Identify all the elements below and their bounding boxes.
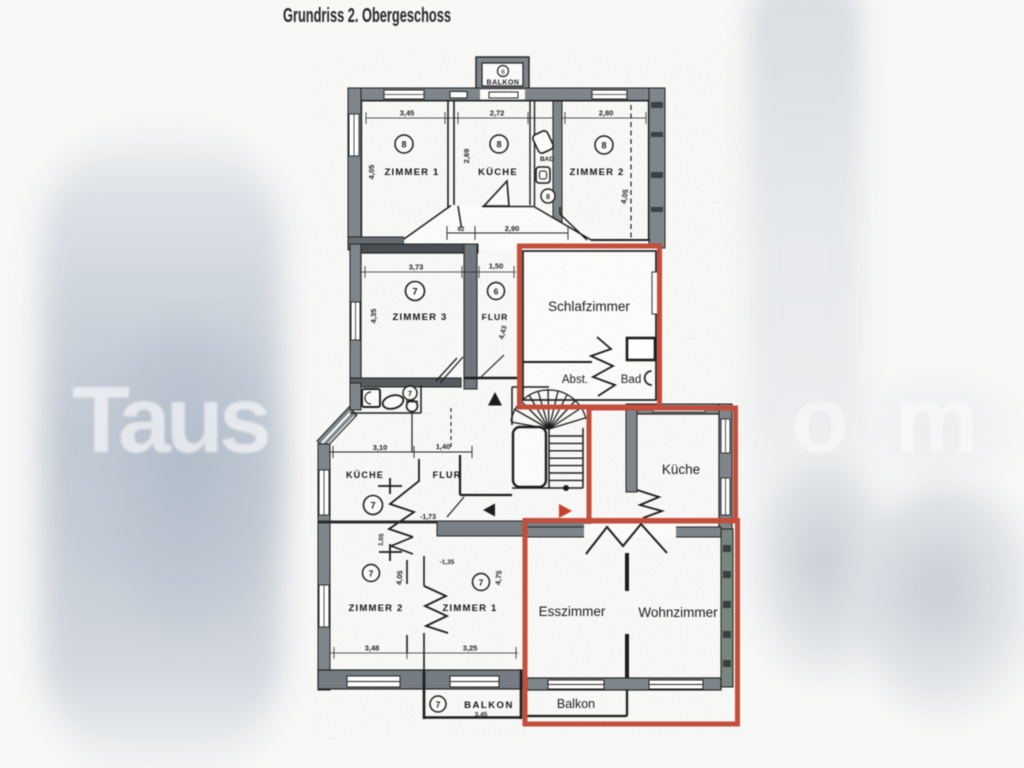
- svg-text:6: 6: [494, 287, 499, 297]
- svg-text:BALKON: BALKON: [464, 700, 514, 711]
- svg-text:Schlafzimmer: Schlafzimmer: [548, 299, 630, 314]
- svg-text:4,05: 4,05: [367, 165, 376, 180]
- svg-text:Küche: Küche: [662, 462, 700, 477]
- svg-text:8: 8: [496, 140, 501, 150]
- svg-text:Balkon: Balkon: [557, 697, 595, 711]
- svg-text:2,90: 2,90: [505, 224, 520, 233]
- svg-text:3,73: 3,73: [409, 263, 424, 272]
- svg-text:BAD: BAD: [540, 156, 554, 163]
- svg-text:Esszimmer: Esszimmer: [539, 604, 606, 619]
- svg-text:8: 8: [601, 141, 606, 151]
- svg-text:7: 7: [479, 578, 484, 588]
- svg-text:FLUR: FLUR: [482, 312, 509, 322]
- svg-text:Bad: Bad: [621, 374, 641, 386]
- svg-text:ZIMMER 2: ZIMMER 2: [570, 167, 625, 178]
- svg-text:4,43: 4,43: [498, 325, 508, 340]
- svg-text:3,10: 3,10: [373, 443, 388, 452]
- svg-text:2,69: 2,69: [462, 149, 471, 164]
- svg-text:-1,73: -1,73: [420, 514, 436, 521]
- svg-text:2,72: 2,72: [490, 109, 505, 118]
- svg-text:1,50: 1,50: [489, 262, 504, 271]
- svg-text:62: 62: [458, 227, 465, 233]
- svg-text:Abst.: Abst.: [562, 374, 588, 386]
- svg-text:ZIMMER 1: ZIMMER 1: [443, 603, 498, 614]
- svg-text:Wohnzimmer: Wohnzimmer: [638, 605, 718, 620]
- svg-text:3,48: 3,48: [365, 644, 380, 653]
- svg-text:4,05: 4,05: [619, 189, 630, 205]
- svg-text:ZIMMER 3: ZIMMER 3: [393, 312, 448, 323]
- svg-text:4,35: 4,35: [369, 309, 378, 324]
- svg-text:7: 7: [370, 501, 375, 512]
- svg-text:ZIMMER 1: ZIMMER 1: [385, 167, 440, 178]
- svg-text:KÜCHE: KÜCHE: [346, 470, 384, 480]
- svg-text:8: 8: [546, 194, 550, 201]
- svg-text:7: 7: [412, 287, 417, 298]
- svg-text:3,45: 3,45: [475, 712, 488, 719]
- svg-text:Grundriss 2. Obergeschoss: Grundriss 2. Obergeschoss: [283, 5, 451, 27]
- svg-text:KÜCHE: KÜCHE: [478, 167, 518, 178]
- svg-text:8: 8: [401, 140, 406, 150]
- svg-text:7: 7: [436, 700, 441, 710]
- svg-text:ZIMMER 2: ZIMMER 2: [349, 603, 404, 614]
- svg-text:3,25: 3,25: [463, 644, 478, 653]
- svg-text:2,80: 2,80: [599, 109, 614, 118]
- svg-text:1,05: 1,05: [377, 533, 385, 547]
- svg-text:7: 7: [408, 389, 412, 398]
- svg-text:7: 7: [369, 569, 374, 579]
- svg-text:6: 6: [501, 69, 505, 76]
- svg-text:4,05: 4,05: [394, 570, 404, 585]
- svg-text:4,75: 4,75: [493, 570, 503, 585]
- svg-text:3,45: 3,45: [400, 109, 415, 118]
- svg-text:FLUR: FLUR: [433, 470, 462, 480]
- svg-text:BALKON: BALKON: [487, 80, 520, 87]
- svg-text:1,40: 1,40: [436, 442, 451, 451]
- svg-text:-1,35: -1,35: [440, 559, 455, 566]
